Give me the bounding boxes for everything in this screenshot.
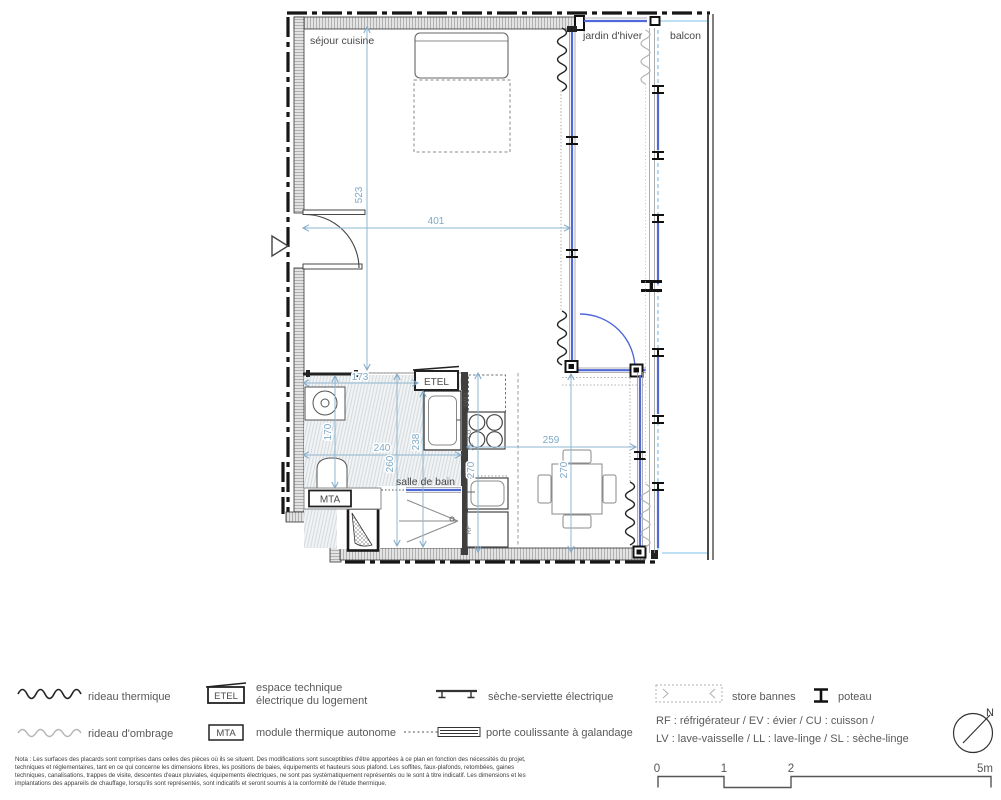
north-label: N xyxy=(986,707,994,719)
kitchen: LV/LL CU EV RF xyxy=(464,373,518,547)
mta-legend-text: MTA xyxy=(216,728,236,739)
glazing-sejour-jardin xyxy=(566,26,578,368)
etel-legend-text: ETEL xyxy=(214,691,238,702)
bed-extension-dashed xyxy=(414,80,510,152)
chair xyxy=(603,475,616,503)
entrance-arrow-icon xyxy=(272,236,288,256)
legend-seche-serviette: sèche-serviette électrique xyxy=(488,691,613,703)
poteau-marker xyxy=(652,152,664,159)
room-label-sejour-cuisine: séjour cuisine xyxy=(310,35,374,47)
nota-line-1: Nota : Les surfaces des placards sont co… xyxy=(15,756,526,763)
dim-173: 173 xyxy=(352,372,369,383)
legend-rideau-ombrage: rideau d'ombrage xyxy=(88,728,173,740)
scale-5m: 5m xyxy=(977,763,993,775)
door-swing-arc xyxy=(305,215,359,269)
rf-label: RF xyxy=(467,526,473,534)
dim-240: 240 xyxy=(374,443,391,454)
dim-270-kitchen: 270 xyxy=(466,461,477,478)
nota-line-3: techniques, canalisations, trappes de vi… xyxy=(15,772,526,779)
room-label-balcon: balcon xyxy=(670,30,701,42)
chair xyxy=(563,515,591,528)
lave-vaisselle-lave-linge xyxy=(469,375,506,412)
chair xyxy=(563,450,591,463)
legend: rideau thermique rideau d'ombrage ETEL e… xyxy=(18,682,909,745)
scale-0: 0 xyxy=(654,763,660,775)
seche-serviette-symbol xyxy=(436,691,477,698)
cu-label: CU xyxy=(467,430,473,439)
nota-text: Nota : Les surfaces des placards sont co… xyxy=(15,756,526,787)
dim-270-dining: 270 xyxy=(559,461,570,478)
scale-2: 2 xyxy=(788,763,794,775)
legend-porte-coulissante: porte coulissante à galandage xyxy=(486,727,633,739)
rideau-ombrage-top xyxy=(641,30,650,84)
scale-bar: 0 1 2 5m xyxy=(654,763,993,788)
poteau-marker xyxy=(652,349,664,356)
rideau-thermique-symbol xyxy=(18,690,81,699)
sofa xyxy=(415,33,508,78)
wall-left-lower xyxy=(294,268,304,515)
legend-etel-line2: électrique du logement xyxy=(256,695,367,707)
balcony-edge xyxy=(658,14,713,560)
dim-170: 170 xyxy=(323,423,334,440)
mta-label: MTA xyxy=(320,495,341,506)
dim-238: 238 xyxy=(411,433,422,450)
poteau-marker xyxy=(634,452,646,459)
etel-label: ETEL xyxy=(424,377,449,388)
dim-259: 259 xyxy=(543,435,560,446)
north-arrow: N xyxy=(954,707,995,753)
dining-set xyxy=(538,450,616,528)
poteau-marker xyxy=(652,416,664,423)
legend-etel-line1: espace technique xyxy=(256,682,342,694)
rideau-thermique-top xyxy=(558,28,567,91)
room-label-salle-de-bain: salle de bain xyxy=(396,476,455,488)
legend-abbr-line1: RF : réfrigérateur / EV : évier / CU : c… xyxy=(656,715,875,727)
floor-plan-page: ETEL MTA LV/LL CU EV RF 523 401 173 240 … xyxy=(0,0,1001,800)
rideau-ombrage-symbol xyxy=(18,730,81,737)
floor-plan-drawing: ETEL MTA LV/LL CU EV RF 523 401 173 240 … xyxy=(0,0,1001,800)
legend-rideau-thermique: rideau thermique xyxy=(88,691,171,703)
dim-523: 523 xyxy=(354,186,365,203)
wall-top xyxy=(294,17,575,29)
toilet xyxy=(317,458,347,492)
poteau-marker xyxy=(652,215,664,222)
scale-1: 1 xyxy=(721,763,727,775)
door-swing-arc xyxy=(580,314,635,369)
poteau-marker xyxy=(566,250,578,257)
wall-left-upper xyxy=(294,17,304,213)
chair xyxy=(538,475,551,503)
rideau-thermique-bottom xyxy=(626,482,635,545)
lv-ll-label: LV/LL xyxy=(464,391,470,407)
legend-abbr-line2: LV : lave-vaisselle / LL : lave-linge / … xyxy=(656,733,909,745)
poteau-marker xyxy=(652,86,664,93)
legend-mta: module thermique autonome xyxy=(256,727,396,739)
poteau-symbol xyxy=(814,690,828,702)
store-bannes-symbol xyxy=(656,685,722,702)
porte-coulissante-symbol xyxy=(438,728,480,737)
legend-poteau: poteau xyxy=(838,691,872,703)
room-label-jardin-hiver: jardin d'hiver xyxy=(582,30,643,42)
dim-401: 401 xyxy=(428,216,445,227)
entrance-door xyxy=(272,210,365,269)
rideau-thermique-door xyxy=(558,311,567,365)
dim-260: 260 xyxy=(385,455,396,472)
poteau-marker xyxy=(652,483,664,490)
legend-store-bannes: store bannes xyxy=(732,691,796,703)
poteau-marker xyxy=(566,137,578,144)
seche-serviette-plan xyxy=(306,370,310,377)
sejour-furniture xyxy=(414,33,510,152)
nota-line-2: techniques et réglementaires, tant en ce… xyxy=(15,764,514,771)
store-banne-plan xyxy=(562,378,645,386)
nota-line-4: implantations des appareils de chauffage… xyxy=(15,780,387,787)
wall-bottom xyxy=(340,548,645,560)
refrigerator xyxy=(467,512,508,547)
